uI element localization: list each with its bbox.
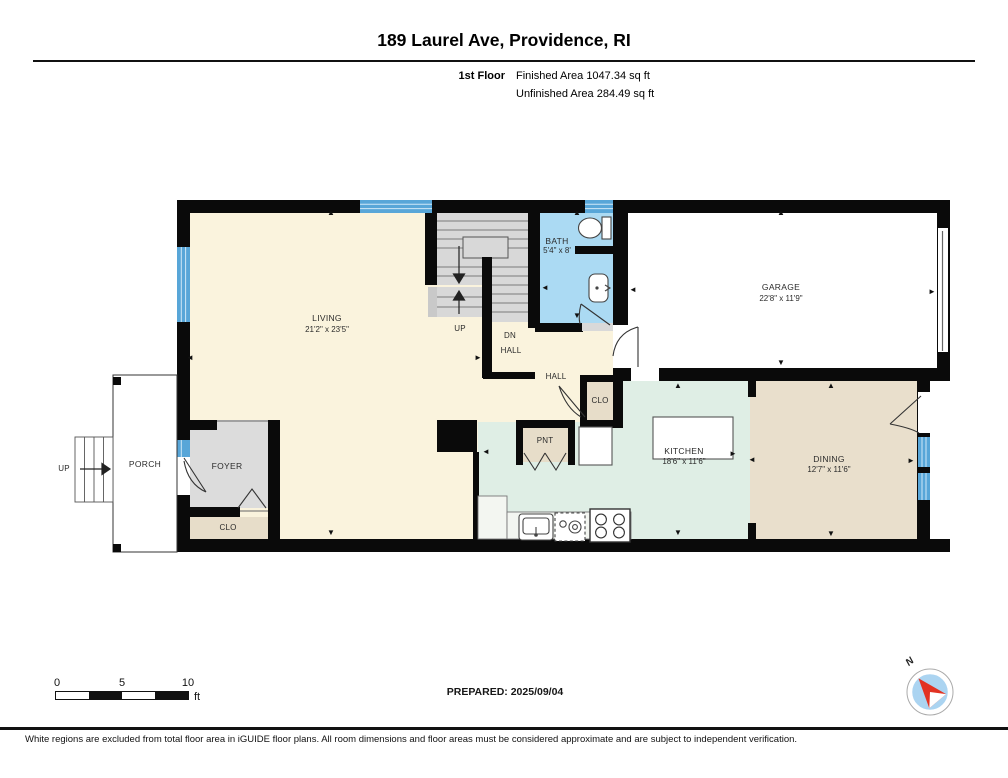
unfinished-area: Unfinished Area 284.49 sq ft <box>516 88 654 100</box>
dining-dim-arrow-left: ◄ <box>748 456 756 464</box>
prepared-date: PREPARED: 2025/09/04 <box>447 686 564 698</box>
dining-window-lower <box>918 473 930 500</box>
wall-bath-right <box>613 200 628 325</box>
garage-entry-opening <box>631 368 659 381</box>
porch-post-bottom <box>113 544 121 552</box>
wall-foyer-top <box>190 420 217 430</box>
dining-dims: 12'7" x 11'6" <box>807 466 850 474</box>
pantry-label: PNT <box>537 437 554 445</box>
bath-window-top <box>585 200 613 213</box>
garage-dim-arrow-down: ▼ <box>777 359 785 367</box>
scale-unit: ft <box>194 691 200 703</box>
living-dim-arrow-right: ► <box>474 354 482 362</box>
stair-up-label: UP <box>454 325 466 333</box>
kitchen-dim-arrow-right: ► <box>729 450 737 458</box>
toilet <box>579 217 612 239</box>
garage-overhead-door <box>938 228 948 352</box>
foyer-label: FOYER <box>212 462 243 471</box>
living-dim-arrow-left: ◄ <box>186 354 194 362</box>
floorplan-page: 189 Laurel Ave, Providence, RI 1st Floor… <box>0 0 1008 778</box>
scale-tick-0: 0 <box>54 677 60 689</box>
wall-stair-right <box>528 200 540 328</box>
foyer-closet-label: CLO <box>219 524 236 532</box>
wall-hallcloset-top <box>580 375 623 382</box>
exterior-stairs-up-label: UP <box>58 465 70 473</box>
wall-foyer-bottom <box>190 507 240 517</box>
living-window-left <box>177 247 190 322</box>
scale-bar <box>55 691 189 700</box>
bath-dim-arrow-down: ▼ <box>573 312 581 320</box>
scale-segment <box>155 692 188 699</box>
compass-icon <box>907 669 953 715</box>
kitchen-dims: 18'6" x 11'6" <box>662 458 705 466</box>
floor-label: 1st Floor <box>459 70 505 82</box>
stair-hall-label: HALL <box>501 347 522 355</box>
bath-label: BATH <box>545 237 568 246</box>
garage-label: GARAGE <box>762 283 800 292</box>
living-dim-arrow-down: ▼ <box>327 529 335 537</box>
garage-dim-arrow-left: ◄ <box>629 286 637 294</box>
wall-bath-partial <box>575 246 613 254</box>
wall-stair-mid <box>482 257 492 378</box>
dining-door-opening <box>918 392 930 433</box>
bath-dims: 5'4" x 8' <box>543 247 571 255</box>
scale-segment <box>122 692 155 699</box>
dining-dim-arrow-down: ▼ <box>827 530 835 538</box>
kitchen-dim-arrow-left: ◄ <box>482 448 490 456</box>
wall-foyer-right <box>268 420 280 552</box>
kitchen-dim-arrow-up: ▲ <box>674 382 682 390</box>
kitchen-dim-arrow-down: ▼ <box>674 529 682 537</box>
wall-garage-bottom <box>613 368 950 381</box>
dining-label: DINING <box>813 455 845 464</box>
bathroom-sink <box>589 274 610 302</box>
garage-dim-arrow-up: ▲ <box>777 209 785 217</box>
bath-dim-arrow-up: ▲ <box>573 209 581 217</box>
page-title: 189 Laurel Ave, Providence, RI <box>0 30 1008 51</box>
scale-tick-10: 10 <box>182 677 194 689</box>
scale-segment <box>89 692 122 699</box>
refrigerator <box>579 427 612 465</box>
wall-top <box>177 200 950 213</box>
wall-pantry-left <box>516 428 523 465</box>
porch-label: PORCH <box>129 460 161 469</box>
stair-dn-label: DN <box>504 332 516 340</box>
finished-area: Finished Area 1047.34 sq ft <box>516 70 650 82</box>
floorplan-drawing <box>0 0 1008 778</box>
dining-dim-arrow-right: ► <box>907 457 915 465</box>
porch-post-top <box>113 377 121 385</box>
wall-hallcloset-right <box>613 382 623 422</box>
wall-living-kitchen-block <box>437 420 477 452</box>
entry-door-opening <box>177 457 190 495</box>
kitchen-sink <box>519 514 553 540</box>
garage-dim-arrow-right: ► <box>928 288 936 296</box>
hall-label: HALL <box>546 373 567 381</box>
bath-dim-arrow-left: ◄ <box>541 284 549 292</box>
wall-dining-stub-top <box>748 380 756 397</box>
dining-window-upper <box>918 437 930 467</box>
scale-segment <box>56 692 89 699</box>
footer-divider <box>0 727 1008 730</box>
header-divider <box>33 60 975 62</box>
dining-dim-arrow-up: ▲ <box>827 382 835 390</box>
wall-pantry-top <box>516 420 575 428</box>
porch-structure <box>75 375 177 552</box>
pantry-floor <box>523 428 568 462</box>
wall-pantry-right <box>568 428 575 465</box>
garage-dims: 22'8" x 11'9" <box>759 295 802 303</box>
living-room-dims: 21'2" x 23'5" <box>305 326 349 334</box>
dishwasher <box>555 513 585 541</box>
living-window-top <box>360 200 432 213</box>
staircase <box>428 213 528 322</box>
disclaimer-text: White regions are excluded from total fl… <box>25 734 797 745</box>
stove <box>590 509 630 542</box>
scale-tick-5: 5 <box>119 677 125 689</box>
living-room-label: LIVING <box>312 314 342 323</box>
wall-dining-stub-bottom <box>748 523 756 540</box>
foyer-sidelight-window <box>177 440 190 457</box>
living-dim-arrow-up: ▲ <box>327 209 335 217</box>
kitchen-label: KITCHEN <box>664 447 703 456</box>
wall-corridor-bottom <box>483 372 535 379</box>
hall-closet-label: CLO <box>591 397 608 405</box>
wall-bath-bottom <box>535 323 583 332</box>
